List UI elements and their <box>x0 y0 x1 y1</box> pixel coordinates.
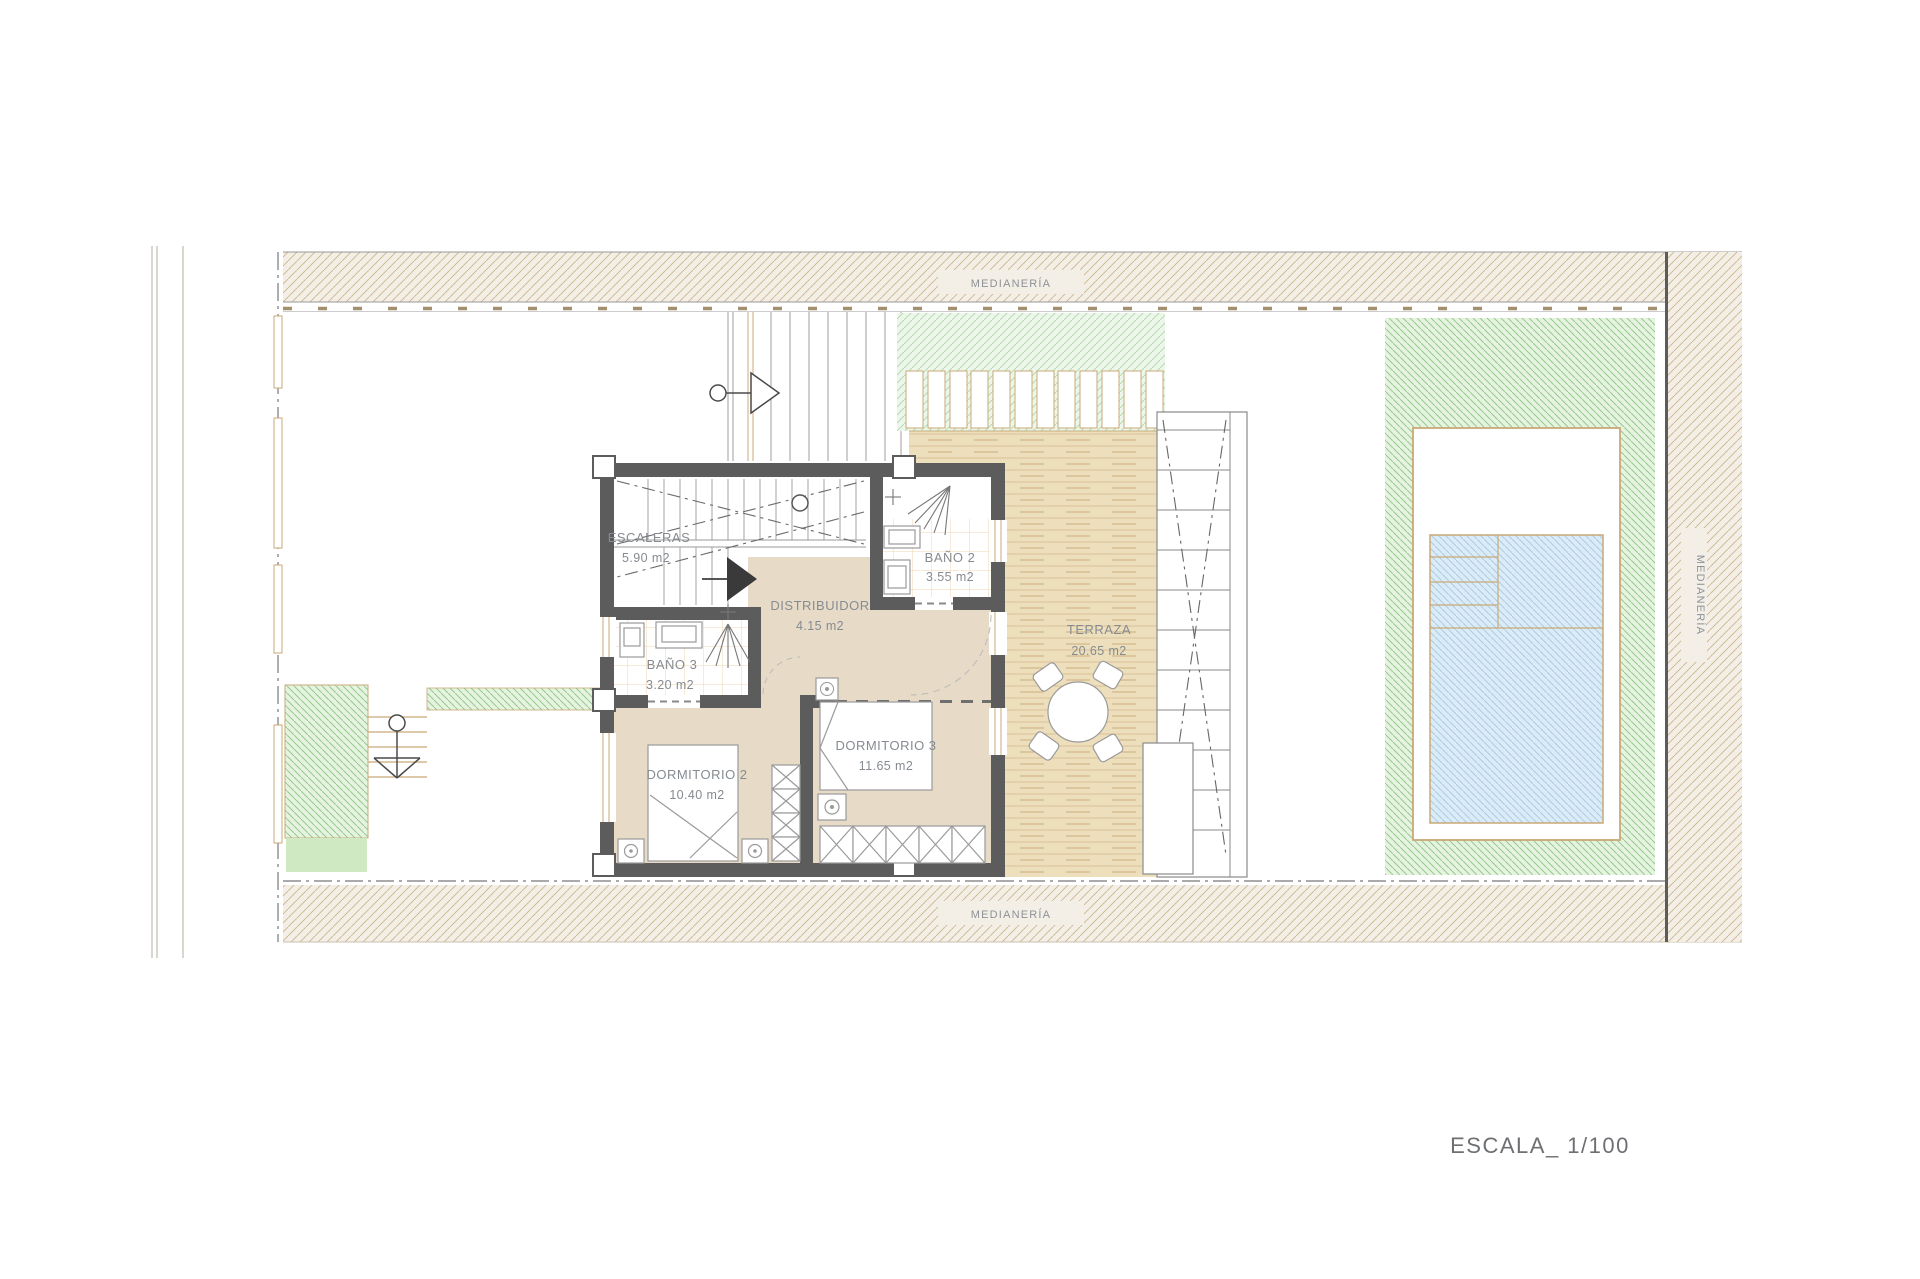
room-area-escaleras: 5.90 m2 <box>622 551 670 565</box>
wardrobe <box>772 765 800 861</box>
left-plot-boundary <box>274 252 282 942</box>
room-label-bano3: BAÑO 3 <box>647 657 698 672</box>
room-area-dormitorio3: 11.65 m2 <box>859 759 913 773</box>
terrace-table <box>1048 682 1108 742</box>
pool-garden <box>1385 318 1655 875</box>
room-label-terraza: TERRAZA <box>1067 622 1131 637</box>
scale-label: ESCALA_ 1/100 <box>1450 1133 1630 1158</box>
planter-bed <box>897 313 1165 431</box>
wardrobe <box>820 826 985 863</box>
room-label-dormitorio3: DORMITORIO 3 <box>835 738 936 753</box>
room-area-bano3: 3.20 m2 <box>646 678 694 692</box>
room-label-escaleras: ESCALERAS <box>608 530 691 545</box>
staircase-landing <box>1143 743 1193 874</box>
floor-plan-drawing: MEDIANERÍA MEDIANERÍA MEDIANERÍA ESCALER… <box>0 0 1920 1279</box>
room-label-dormitorio2: DORMITORIO 2 <box>646 767 747 782</box>
medianeria-bottom-label: MEDIANERÍA <box>971 908 1051 921</box>
room-area-bano2: 3.55 m2 <box>926 570 974 584</box>
pool <box>1430 535 1603 823</box>
room-label-bano2: BAÑO 2 <box>925 550 976 565</box>
medianeria-top-label: MEDIANERÍA <box>971 277 1051 290</box>
wall-device <box>816 678 838 700</box>
room-label-distribuidor: DISTRIBUIDOR <box>770 598 869 613</box>
medianeria-right-label: MEDIANERÍA <box>1694 555 1707 635</box>
floor-plan-page: MEDIANERÍA MEDIANERÍA MEDIANERÍA ESCALER… <box>0 0 1920 1279</box>
room-area-distribuidor: 4.15 m2 <box>796 619 844 633</box>
solarium-staircase <box>1143 412 1247 877</box>
room-area-terraza: 20.65 m2 <box>1071 644 1126 658</box>
room-area-dormitorio2: 10.40 m2 <box>669 788 724 802</box>
